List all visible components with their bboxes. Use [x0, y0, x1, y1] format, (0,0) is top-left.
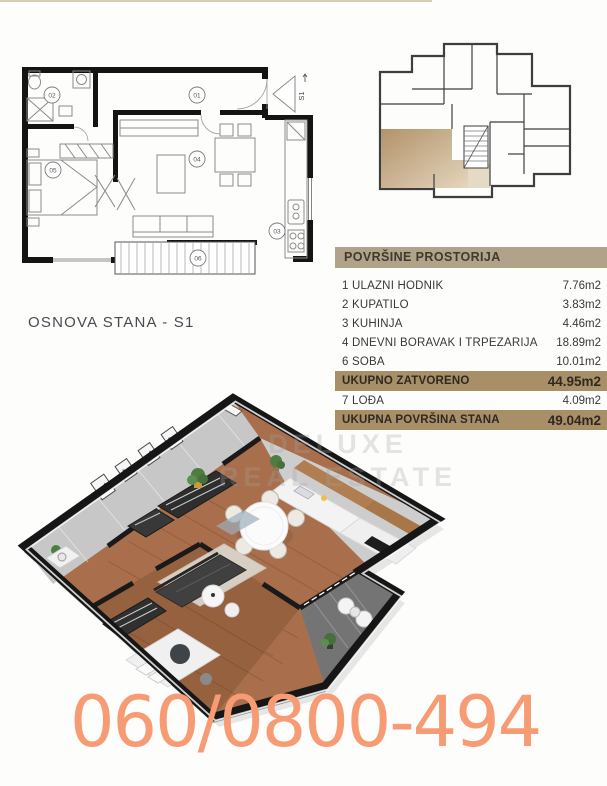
room-label-05: 05: [49, 168, 57, 175]
row-label: 3 KUHINJA: [342, 318, 403, 330]
room-label-01: 01: [193, 93, 201, 100]
row-value: 49.04m2: [548, 413, 601, 428]
keyplan-highlighted-unit: [381, 129, 468, 188]
row-label: 1 ULAZNI HODNIK: [342, 280, 443, 292]
row-label: 2 KUPATILO: [342, 299, 409, 311]
room-label-04: 04: [193, 157, 201, 164]
row-label: 6 SOBA: [342, 356, 385, 368]
table-row: 4 DNEVNI BORAVAK I TRPEZARIJA 18.89m2: [335, 333, 607, 352]
keyplan-stairs: [464, 126, 488, 168]
table-row: 1 ULAZNI HODNIK 7.76m2: [335, 276, 607, 295]
table-row: 3 KUHINJA 4.46m2: [335, 314, 607, 333]
phone-number: 060/0800-494: [70, 681, 540, 763]
row-value: 3.83m2: [563, 299, 601, 311]
row-value: 44.95m2: [548, 374, 601, 389]
room-label-03: 03: [273, 229, 281, 236]
table-row: 2 KUPATILO 3.83m2: [335, 295, 607, 314]
table-row: 6 SOBA 10.01m2: [335, 352, 607, 371]
plan2d-furniture: [27, 71, 307, 258]
row-value: 18.89m2: [556, 337, 601, 349]
room-label-06: 06: [194, 256, 202, 263]
fruit-bowl: [321, 495, 327, 501]
area-table-title: POVRŠINE PROSTORIJA: [335, 247, 607, 268]
row-value: 4.09m2: [563, 395, 601, 407]
floor-plan-2d: 01 02 03 04 05 06 S1: [15, 60, 325, 295]
top-accent-line: [0, 0, 432, 2]
building-key-plan: [372, 34, 577, 212]
flyer-page: 01 02 03 04 05 06 S1 OSNOVA STANA - S1: [0, 0, 607, 786]
row-value: 7.76m2: [563, 280, 601, 292]
bed-throw: [170, 644, 190, 664]
plan-caption: OSNOVA STANA - S1: [28, 314, 195, 331]
row-value: 10.01m2: [556, 356, 601, 368]
entrance-arrow-icon: S1: [273, 74, 307, 112]
row-value: 4.46m2: [563, 318, 601, 330]
room-label-02: 02: [48, 93, 56, 100]
entrance-marker-label: S1: [297, 91, 306, 100]
plan2d-loggia: [115, 242, 255, 274]
row-label: 4 DNEVNI BORAVAK I TRPEZARIJA: [342, 337, 538, 349]
